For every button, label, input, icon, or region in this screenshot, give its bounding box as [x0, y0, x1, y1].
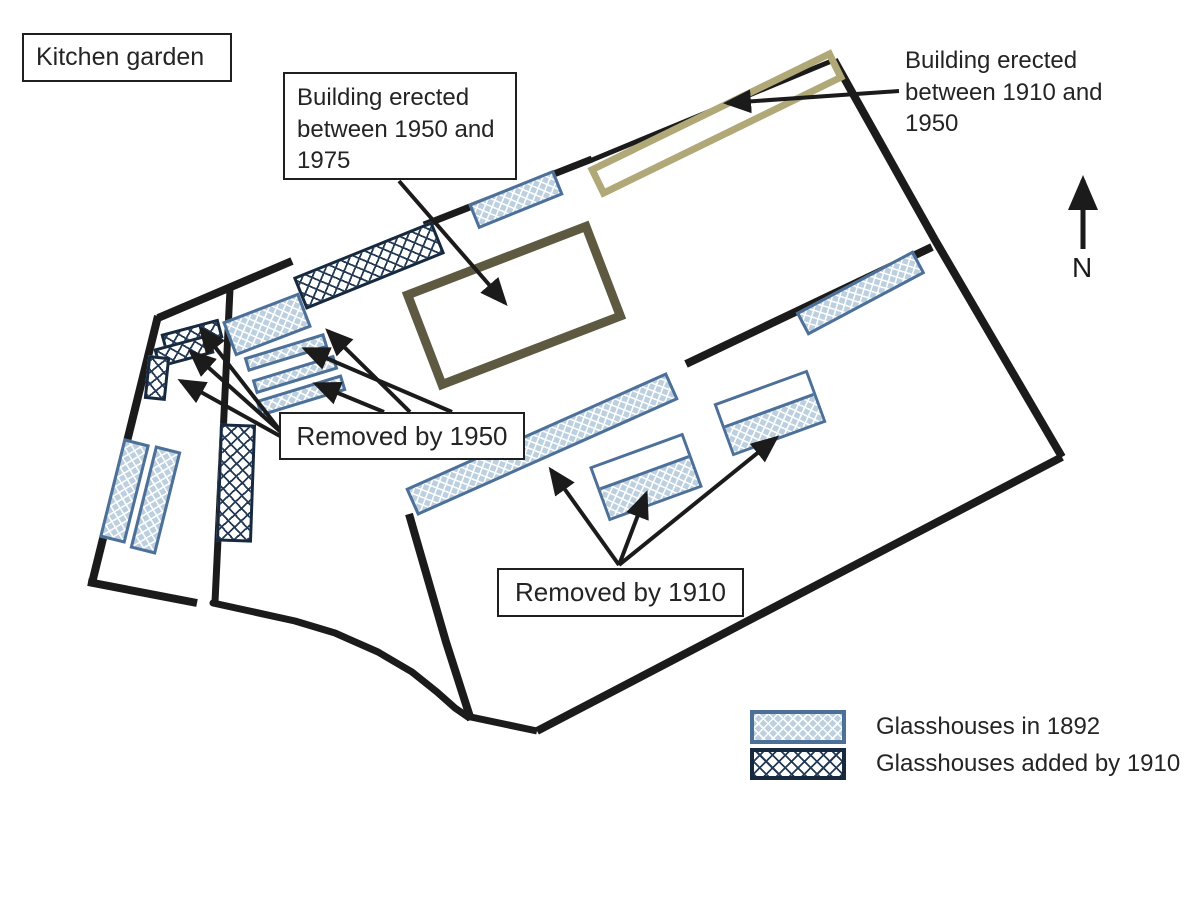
callout-building-1910-1950: Building erected between 1910 and 1950	[905, 45, 1120, 140]
north-label-text: N	[1072, 252, 1092, 283]
callout-removed-by-1910: Removed by 1910	[497, 568, 744, 617]
arrow-building-1950-1975	[399, 181, 505, 303]
page-title-text: Kitchen garden	[36, 41, 204, 74]
arrow-removed-1950-e	[328, 331, 410, 412]
north-label: N	[1072, 252, 1092, 284]
legend-item-1910: Glasshouses added by 1910	[750, 748, 1180, 780]
kitchen-garden-plan: Kitchen garden Building erected between …	[0, 0, 1200, 900]
legend-label-1892: Glasshouses in 1892	[876, 713, 1100, 741]
callout-building-1950-1975: Building erected between 1950 and 1975	[283, 72, 517, 180]
callout-building-1910-1950-text: Building erected between 1910 and 1950	[905, 47, 1103, 137]
legend-swatch-1910	[750, 748, 846, 780]
callout-removed-by-1950: Removed by 1950	[279, 412, 525, 460]
callout-building-1950-1975-text: Building erected between 1950 and 1975	[297, 84, 495, 174]
legend-item-1892: Glasshouses in 1892	[750, 710, 1100, 744]
legend-label-1910: Glasshouses added by 1910	[876, 750, 1180, 778]
arrow-removed-1910-a	[551, 470, 619, 565]
arrow-removed-1950-a	[201, 329, 282, 433]
callout-removed-by-1910-text: Removed by 1910	[515, 575, 726, 609]
page-title: Kitchen garden	[22, 33, 232, 82]
arrow-removed-1950-f	[316, 384, 384, 412]
legend-swatch-1892	[750, 710, 846, 744]
arrow-building-1910-1950	[727, 91, 899, 103]
callout-removed-by-1950-text: Removed by 1950	[296, 419, 507, 453]
